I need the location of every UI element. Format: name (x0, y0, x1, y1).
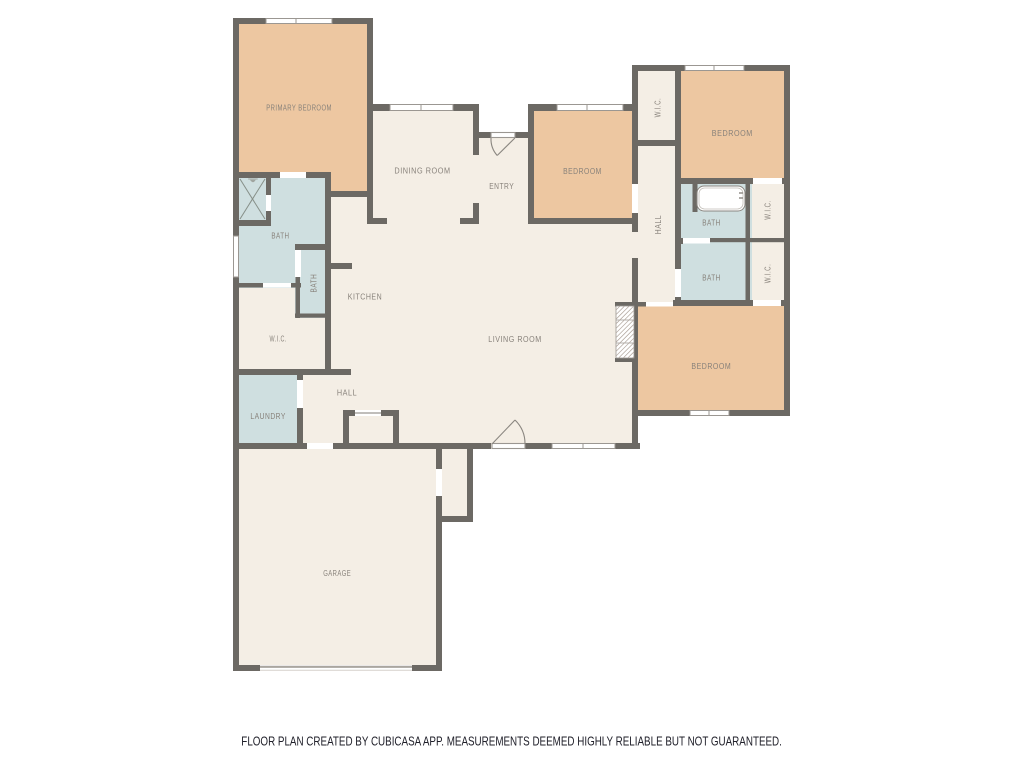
svg-text:W.I.C.: W.I.C. (764, 264, 773, 284)
svg-text:HALL: HALL (337, 389, 357, 398)
svg-text:KITCHEN: KITCHEN (348, 292, 382, 301)
svg-text:BATH: BATH (702, 273, 721, 282)
svg-text:BEDROOM: BEDROOM (712, 129, 753, 138)
svg-text:FLOOR PLAN CREATED BY CUBICASA: FLOOR PLAN CREATED BY CUBICASA APP. MEAS… (241, 735, 782, 749)
svg-text:BATH: BATH (702, 219, 721, 228)
svg-text:W.I.C.: W.I.C. (270, 335, 287, 344)
svg-text:LAUNDRY: LAUNDRY (250, 412, 286, 421)
svg-text:HALL: HALL (654, 215, 663, 235)
svg-text:GARAGE: GARAGE (323, 569, 351, 578)
svg-text:PRIMARY BEDROOM: PRIMARY BEDROOM (266, 104, 332, 113)
svg-text:W.I.C.: W.I.C. (654, 98, 663, 118)
svg-text:ENTRY: ENTRY (489, 182, 514, 191)
svg-text:DINING ROOM: DINING ROOM (394, 166, 450, 175)
svg-text:BATH: BATH (310, 274, 319, 293)
svg-text:BEDROOM: BEDROOM (691, 362, 731, 371)
svg-text:BATH: BATH (271, 232, 289, 241)
svg-text:W.I.C.: W.I.C. (764, 200, 773, 220)
svg-text:BEDROOM: BEDROOM (563, 167, 602, 176)
svg-text:LIVING ROOM: LIVING ROOM (488, 335, 542, 344)
